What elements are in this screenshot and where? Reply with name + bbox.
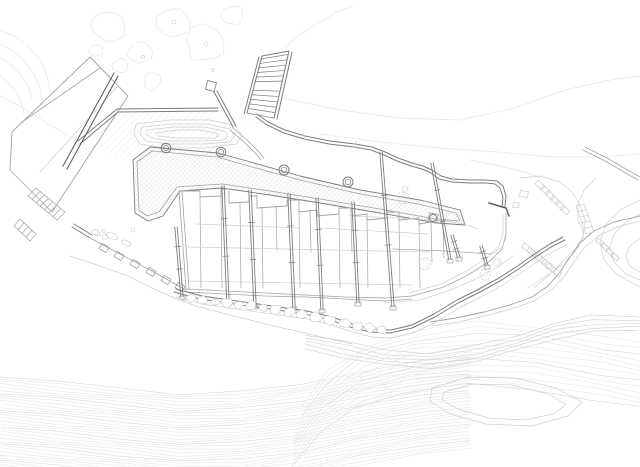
shore-ribbon-right: [430, 216, 640, 326]
screenshot-canvas: [0, 0, 640, 467]
contour-tongue: [430, 377, 582, 426]
contours-upper-right: [282, 6, 640, 180]
offshore-contour: [70, 256, 352, 344]
contour-field-bottom-right: [290, 321, 640, 467]
boats: [105, 231, 131, 247]
road-upper-right: [583, 147, 640, 180]
dock-ladders: [14, 188, 65, 241]
contour-field-bottom-left: [0, 357, 471, 467]
tree-trunk-marks: [142, 20, 215, 72]
contours-top-left: [0, 30, 78, 141]
mooring-walk-lines: [72, 224, 186, 290]
bridge-abutment: [205, 80, 216, 91]
mooring-cleats: [99, 243, 185, 291]
hillside-contours-right: [520, 176, 640, 288]
site-plan-svg: [0, 0, 640, 467]
